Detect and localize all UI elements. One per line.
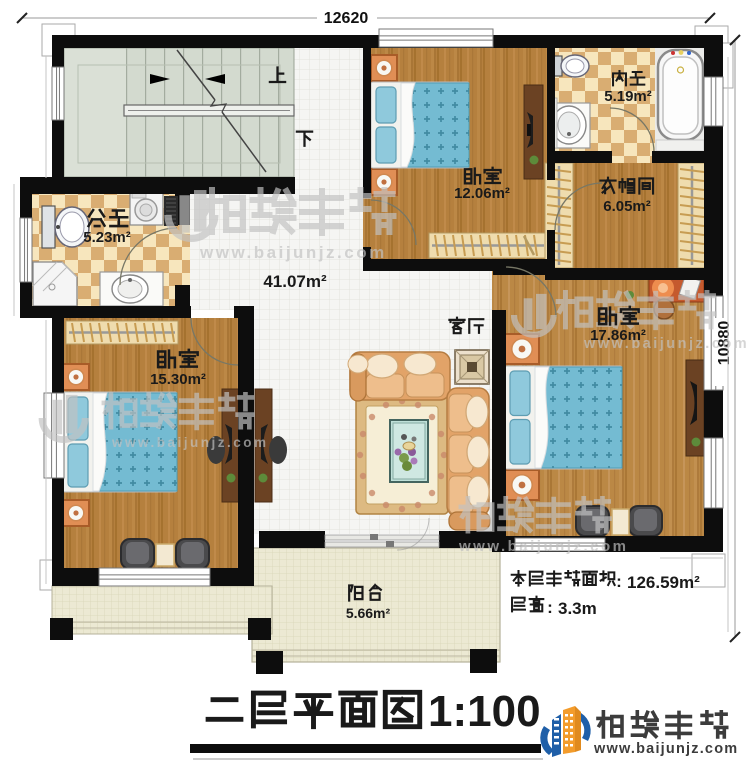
svg-text:41.07m²: 41.07m² xyxy=(263,272,327,291)
svg-text:5.19m²: 5.19m² xyxy=(604,88,652,105)
svg-text:www.baijunjz.com: www.baijunjz.com xyxy=(111,435,269,450)
svg-text:5.66m²: 5.66m² xyxy=(346,605,391,621)
svg-text:5.23m²: 5.23m² xyxy=(83,229,131,246)
svg-text:17.86m²: 17.86m² xyxy=(590,327,646,344)
svg-text:126.59m²: 126.59m² xyxy=(627,573,700,592)
svg-text:www.baijunjz.com: www.baijunjz.com xyxy=(458,538,628,555)
svg-text::: : xyxy=(616,572,622,591)
svg-text:3.3m: 3.3m xyxy=(558,599,597,618)
svg-text:15.30m²: 15.30m² xyxy=(150,371,206,388)
svg-text:12.06m²: 12.06m² xyxy=(454,185,510,202)
svg-text:www.baijunjz.com: www.baijunjz.com xyxy=(199,243,387,262)
svg-text:1:100: 1:100 xyxy=(428,687,541,736)
svg-text::: : xyxy=(547,598,553,617)
svg-text:www.baijunjz.com: www.baijunjz.com xyxy=(593,741,738,757)
svg-text:12620: 12620 xyxy=(324,10,369,27)
svg-text:6.05m²: 6.05m² xyxy=(603,198,651,215)
